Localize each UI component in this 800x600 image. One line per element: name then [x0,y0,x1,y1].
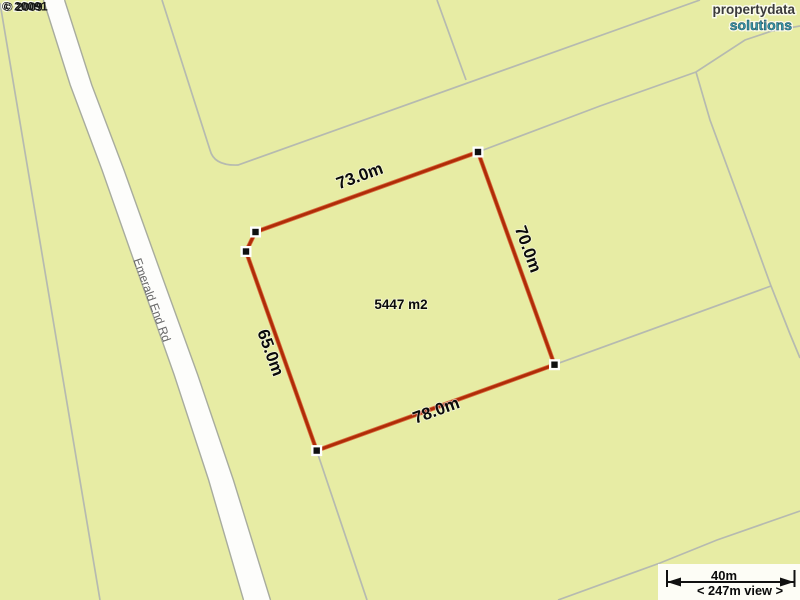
svg-text:5447 m2: 5447 m2 [374,297,427,312]
svg-text:© 2009: © 2009 [4,0,43,14]
svg-text:40m: 40m [711,568,737,583]
svg-text:1: 1 [41,0,48,14]
svg-text:propertydata: propertydata [712,2,795,17]
svg-text:< 247m view >: < 247m view > [697,583,783,598]
svg-text:solutions: solutions [730,17,792,33]
